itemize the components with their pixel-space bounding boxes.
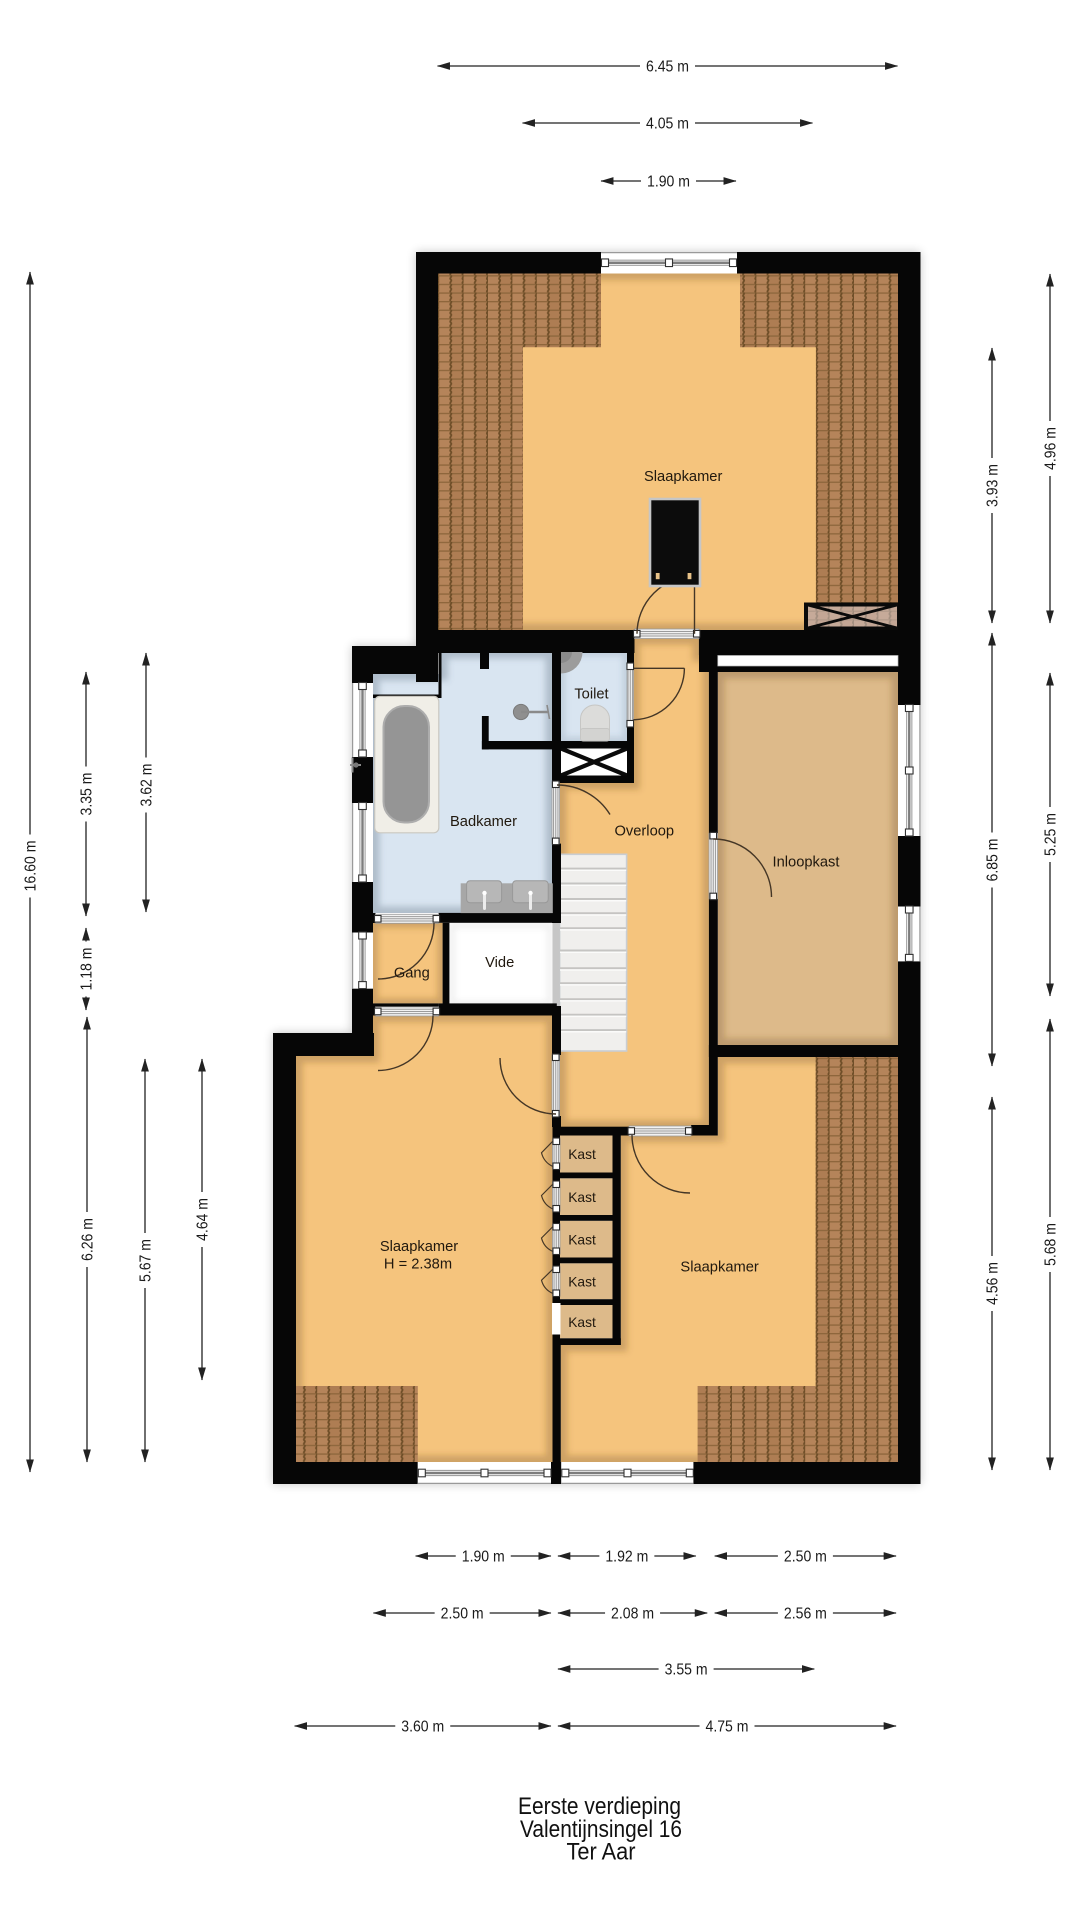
svg-text:Kast: Kast <box>568 1147 596 1162</box>
svg-text:Inloopkast: Inloopkast <box>773 855 840 871</box>
svg-text:6.85 m: 6.85 m <box>985 839 1002 882</box>
svg-text:Kast: Kast <box>568 1274 596 1289</box>
svg-text:5.25 m: 5.25 m <box>1043 813 1060 856</box>
svg-text:Ter Aar: Ter Aar <box>567 1839 636 1866</box>
svg-text:3.60 m: 3.60 m <box>401 1719 444 1736</box>
svg-text:4.56 m: 4.56 m <box>985 1262 1002 1305</box>
svg-text:2.56 m: 2.56 m <box>784 1606 827 1623</box>
svg-text:Kast: Kast <box>568 1232 596 1247</box>
svg-text:5.67 m: 5.67 m <box>138 1239 155 1282</box>
svg-text:1.18 m: 1.18 m <box>79 948 96 991</box>
svg-text:3.93 m: 3.93 m <box>985 464 1002 507</box>
svg-text:Toilet: Toilet <box>574 687 608 703</box>
svg-text:6.26 m: 6.26 m <box>80 1218 97 1261</box>
svg-text:2.50 m: 2.50 m <box>784 1549 827 1566</box>
svg-text:Overloop: Overloop <box>614 823 674 839</box>
svg-text:Vide: Vide <box>485 955 514 971</box>
svg-text:4.64 m: 4.64 m <box>195 1198 212 1241</box>
svg-text:Badkamer: Badkamer <box>450 814 517 830</box>
svg-text:1.90 m: 1.90 m <box>462 1549 505 1566</box>
svg-text:2.50 m: 2.50 m <box>441 1606 484 1623</box>
svg-text:4.05 m: 4.05 m <box>646 116 689 133</box>
svg-text:3.62 m: 3.62 m <box>139 764 156 807</box>
svg-text:Slaapkamer: Slaapkamer <box>680 1260 758 1276</box>
svg-text:3.35 m: 3.35 m <box>79 773 96 816</box>
svg-text:5.68 m: 5.68 m <box>1043 1223 1060 1266</box>
svg-text:1.92 m: 1.92 m <box>605 1549 648 1566</box>
svg-text:4.75 m: 4.75 m <box>706 1719 749 1736</box>
svg-text:H = 2.38m: H = 2.38m <box>384 1257 452 1273</box>
svg-text:Kast: Kast <box>568 1190 596 1205</box>
svg-text:2.08 m: 2.08 m <box>611 1606 654 1623</box>
svg-text:3.55 m: 3.55 m <box>665 1662 708 1679</box>
svg-text:16.60 m: 16.60 m <box>23 841 40 892</box>
svg-text:4.96 m: 4.96 m <box>1043 427 1060 470</box>
svg-text:1.90 m: 1.90 m <box>647 174 690 191</box>
svg-text:Kast: Kast <box>568 1315 596 1330</box>
svg-text:Slaapkamer: Slaapkamer <box>644 469 722 485</box>
svg-text:6.45 m: 6.45 m <box>646 59 689 76</box>
svg-text:Gang: Gang <box>394 966 430 982</box>
svg-text:Slaapkamer: Slaapkamer <box>380 1239 458 1255</box>
